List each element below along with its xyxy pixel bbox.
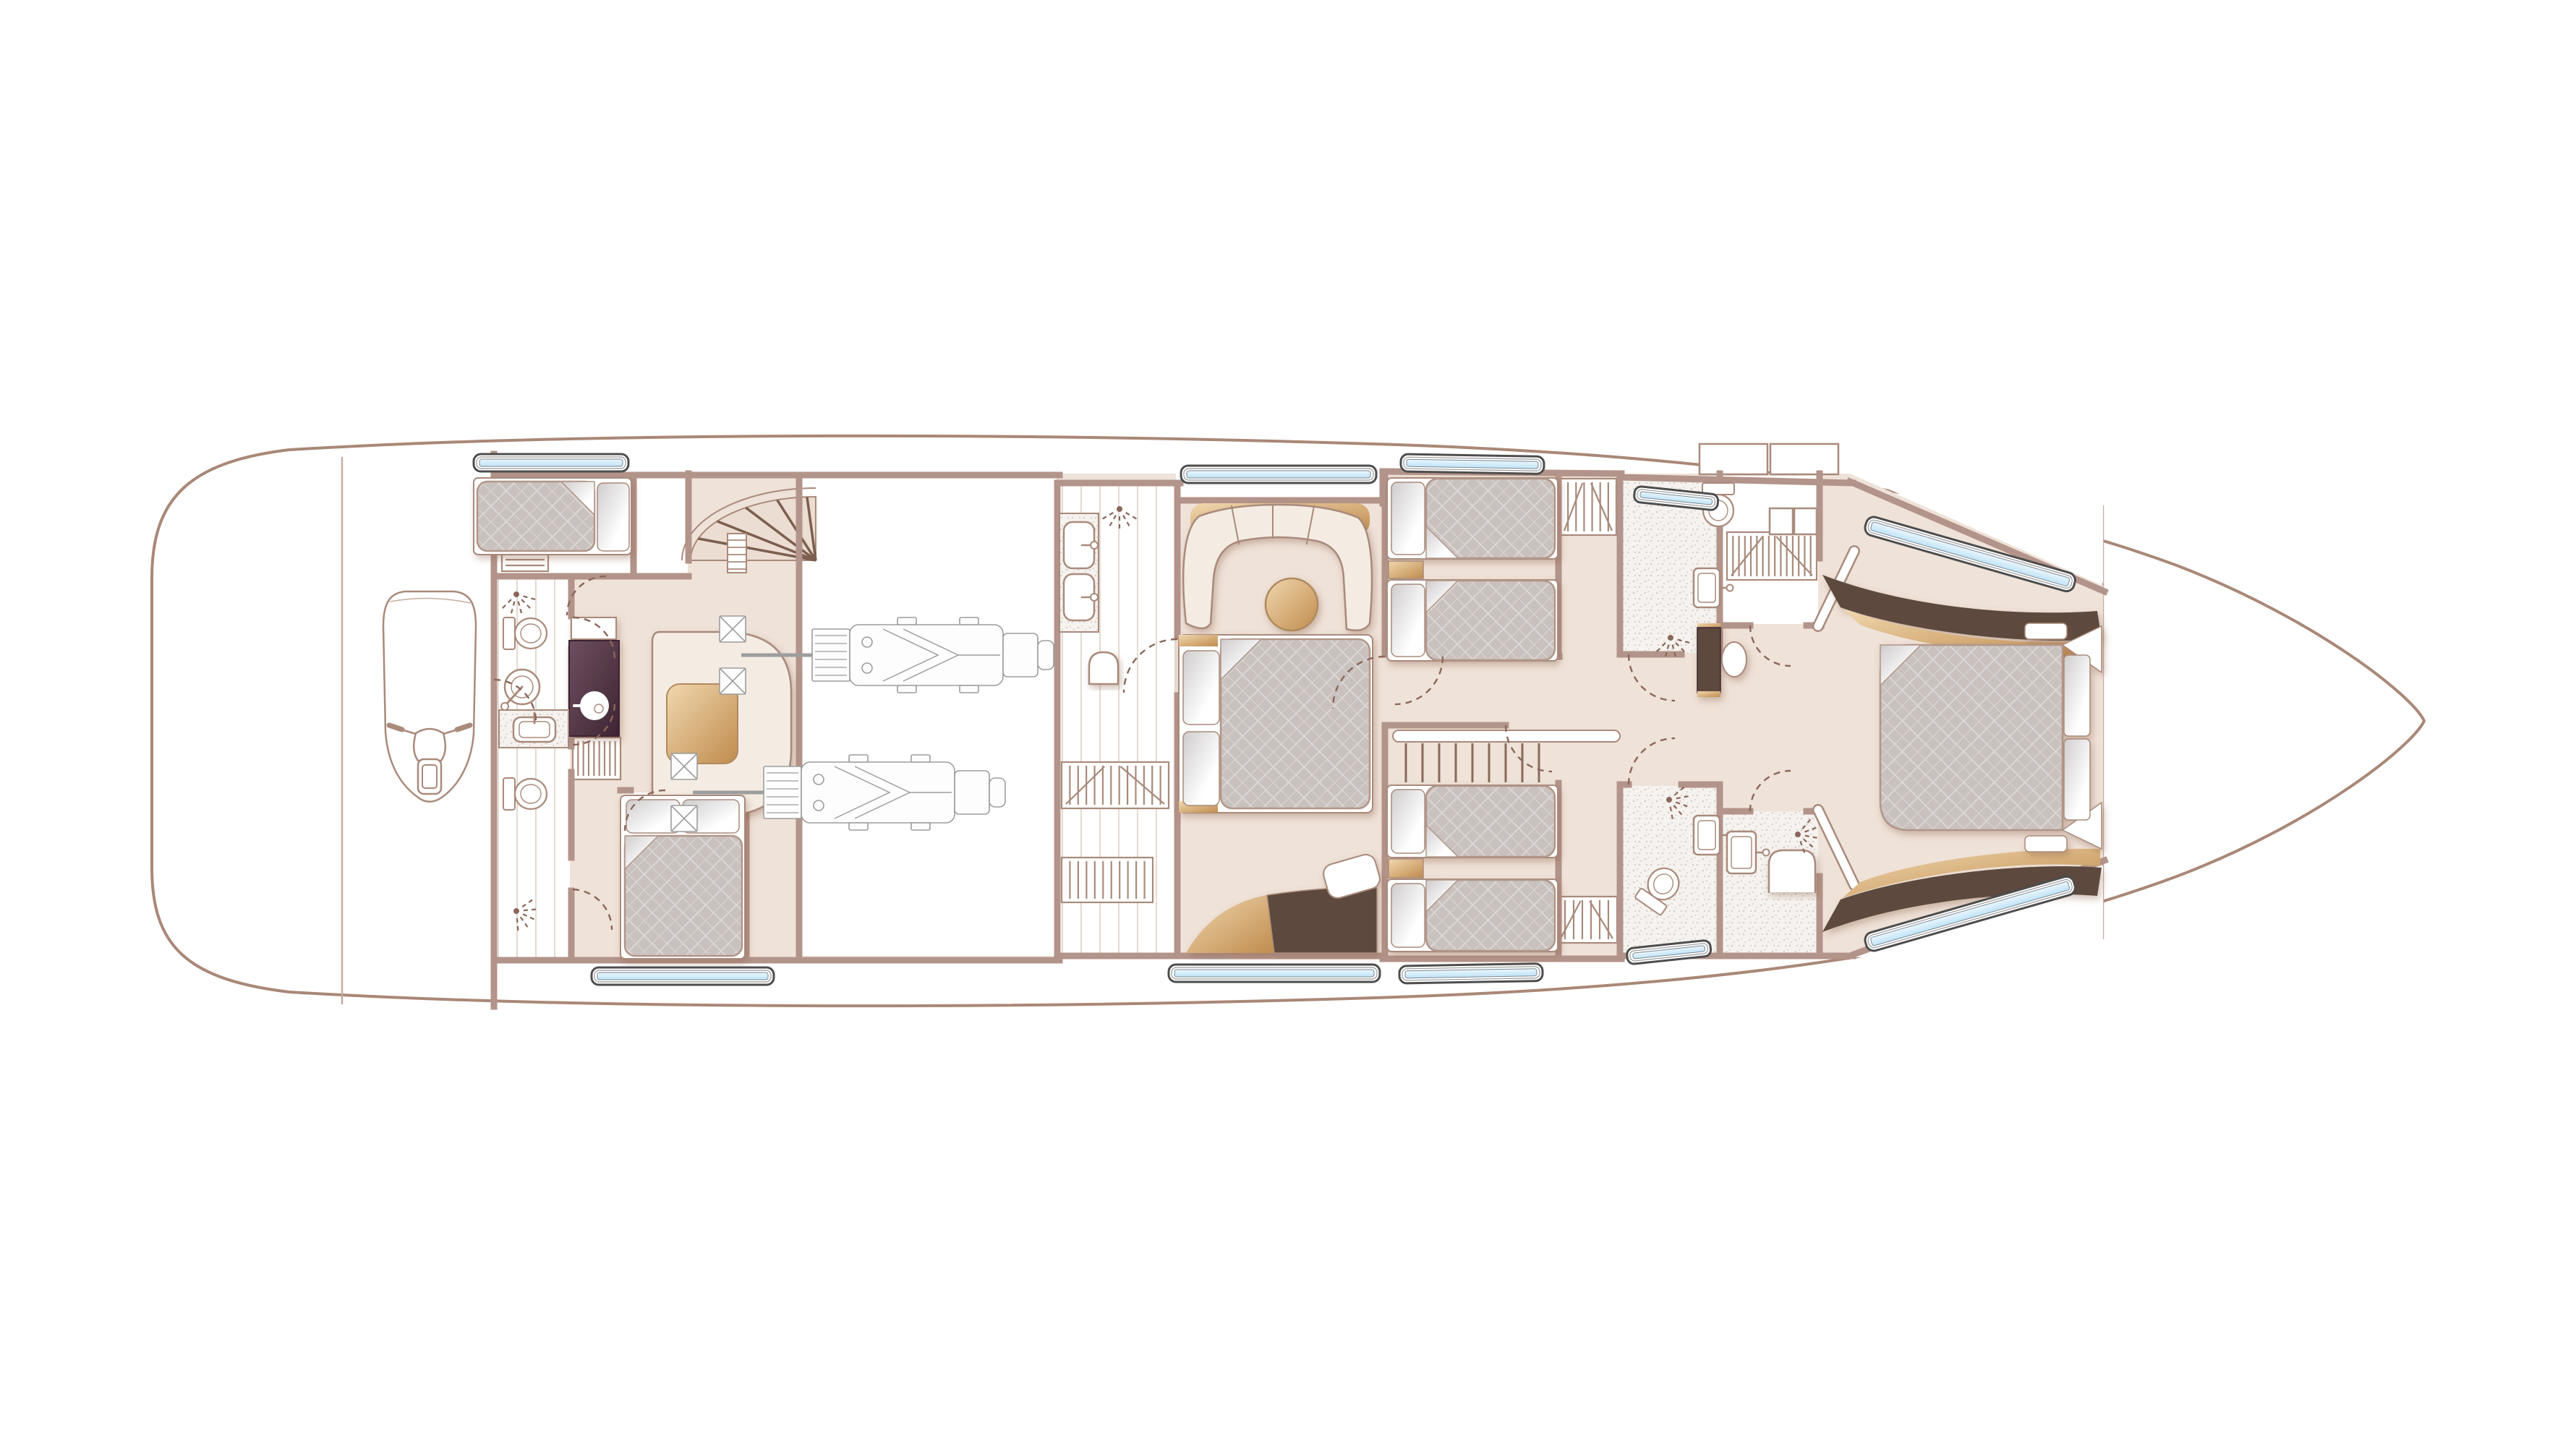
jet-ski	[383, 591, 476, 802]
engine-room-ladder	[728, 534, 746, 573]
hull-window	[1181, 466, 1376, 483]
master-wardrobe-b	[1062, 858, 1153, 902]
yacht-lower-deck-plan	[0, 0, 2576, 1449]
vip-bath-seat	[1769, 850, 1815, 892]
crew-sink-counter	[499, 710, 568, 748]
master-coffee-table	[1266, 578, 1318, 631]
master-bed	[1179, 635, 1373, 813]
crew-bed-starboard	[474, 478, 631, 555]
corridor-locker-top	[1560, 479, 1616, 535]
engine-room-floor	[801, 476, 1056, 956]
crew-hanging-locker	[573, 738, 620, 779]
twin-bed-1	[1387, 478, 1558, 559]
hull-window	[474, 454, 628, 471]
twin-nightstand-bottom	[1389, 859, 1423, 878]
yacht-floorplan-page	[0, 0, 2576, 1449]
vip-wardrobe-rack	[1727, 532, 1817, 580]
vip-shelf-b	[1794, 508, 1817, 534]
master-twin-sink-counter	[1059, 513, 1099, 632]
twin-bed-2	[1387, 580, 1558, 661]
hull-window	[1399, 964, 1543, 983]
bow-band-locker-a	[1699, 444, 1767, 474]
crew-locker-floor	[636, 476, 688, 575]
vip-shelf-a	[1770, 508, 1793, 534]
hull-window	[1169, 965, 1380, 982]
twin-bed-3	[1387, 785, 1558, 858]
hull-window	[1401, 454, 1544, 474]
master-wardrobe-a	[1062, 762, 1169, 808]
corridor-locker-bottom	[1556, 897, 1617, 943]
crew-toilet-aft	[503, 778, 547, 810]
crew-toilet-fwd	[503, 617, 547, 649]
twin-bed-4	[1387, 879, 1558, 952]
bow-band-locker-b	[1770, 444, 1838, 474]
master-bidet	[1089, 652, 1118, 684]
twin-nightstand-top	[1389, 561, 1423, 578]
hull-window	[592, 967, 774, 985]
